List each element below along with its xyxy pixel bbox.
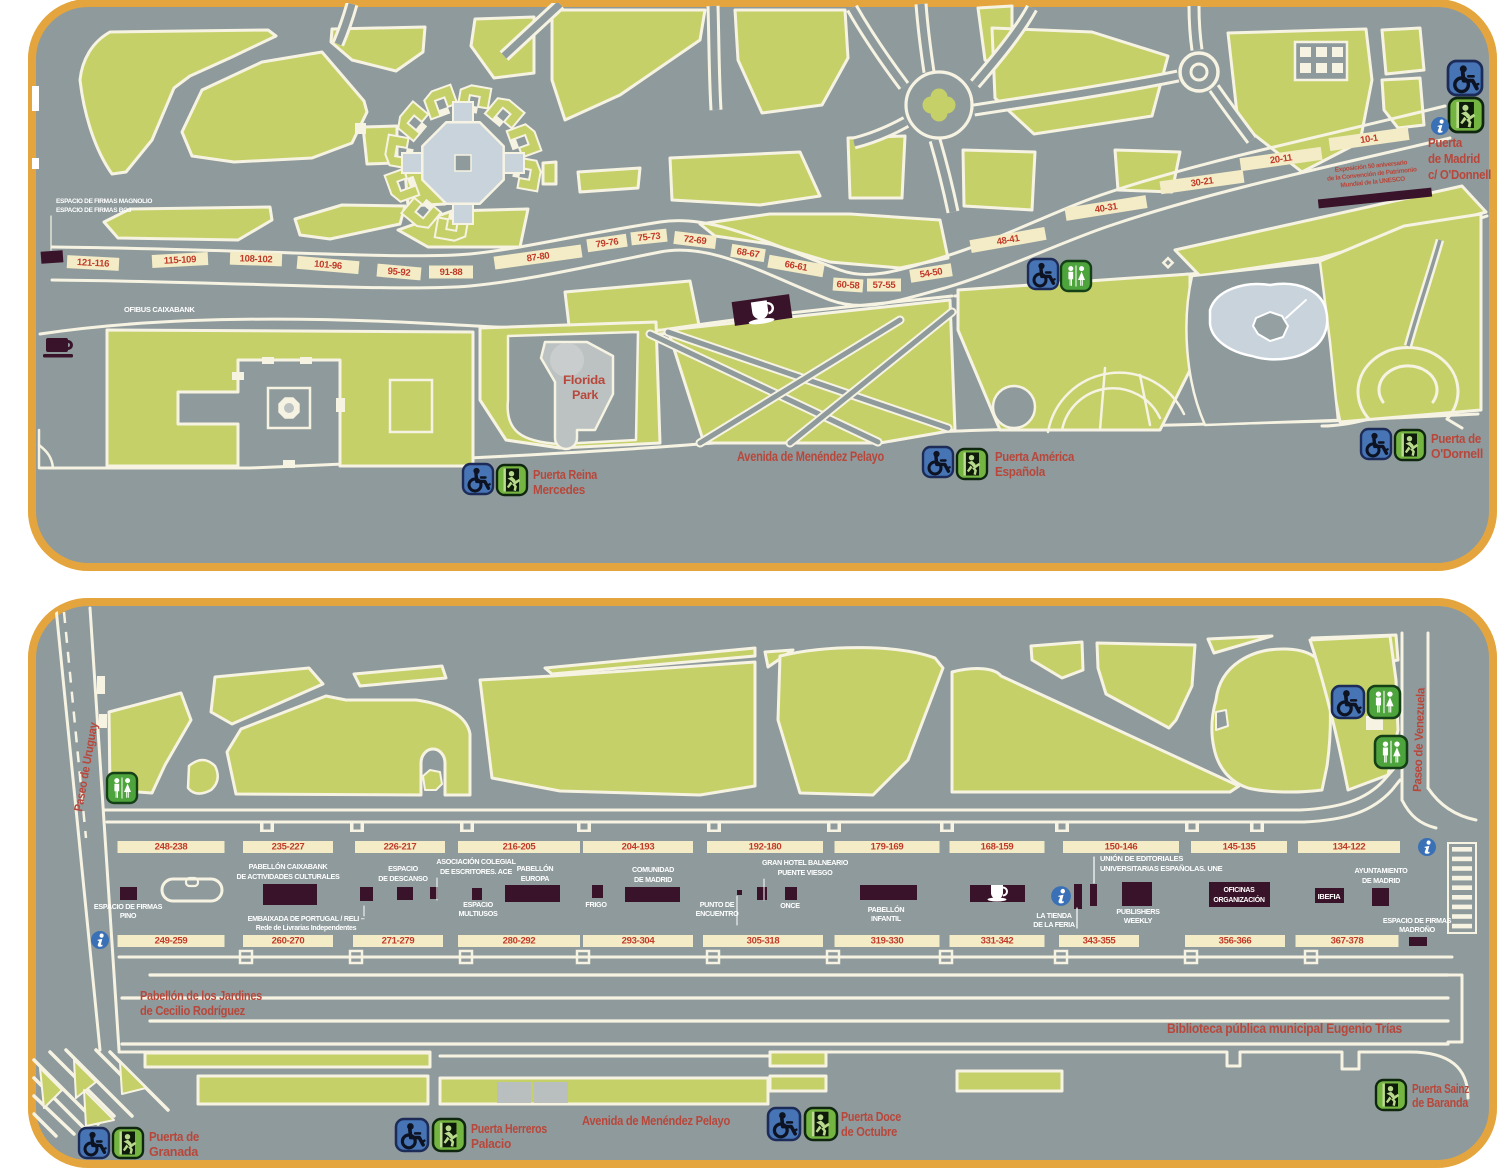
svg-text:OFICINAS: OFICINAS (1223, 887, 1255, 894)
svg-text:c/ O'Donnell: c/ O'Donnell (1428, 168, 1491, 182)
svg-text:91-88: 91-88 (440, 267, 463, 278)
svg-text:PABELLÓN CAIXABANK: PABELLÓN CAIXABANK (249, 862, 329, 871)
svg-text:Puerta América: Puerta América (995, 450, 1075, 464)
svg-text:356-366: 356-366 (1219, 935, 1252, 946)
svg-text:Puerta Herreros: Puerta Herreros (471, 1122, 547, 1136)
svg-text:PABELLÓN: PABELLÓN (517, 864, 554, 873)
svg-text:60-58: 60-58 (836, 279, 860, 292)
svg-text:FRIGO: FRIGO (585, 900, 607, 909)
svg-text:280-292: 280-292 (503, 935, 536, 946)
svg-text:134-122: 134-122 (1333, 841, 1366, 852)
svg-text:ESPACIO: ESPACIO (463, 900, 493, 909)
svg-text:235-227: 235-227 (272, 841, 305, 852)
svg-text:INFANTIL: INFANTIL (871, 914, 902, 923)
svg-text:319-330: 319-330 (871, 935, 904, 946)
svg-text:95-92: 95-92 (387, 266, 411, 279)
svg-text:204-193: 204-193 (622, 841, 655, 852)
svg-text:121-116: 121-116 (77, 257, 110, 270)
svg-text:COMUNIDAD: COMUNIDAD (632, 865, 674, 874)
svg-text:57-55: 57-55 (873, 280, 897, 291)
svg-text:PUNTO DE: PUNTO DE (700, 900, 735, 909)
svg-text:Granada: Granada (149, 1145, 199, 1159)
svg-text:ENCUENTRO: ENCUENTRO (696, 909, 740, 918)
svg-text:Puerta Doce: Puerta Doce (841, 1110, 901, 1124)
svg-text:GRAN HOTEL BALNEARIO: GRAN HOTEL BALNEARIO (762, 858, 849, 867)
svg-text:Avenida de Menéndez Pelayo: Avenida de Menéndez Pelayo (582, 1113, 730, 1128)
svg-text:DE DESCANSO: DE DESCANSO (378, 874, 428, 883)
svg-text:de Cecilio Rodríguez: de Cecilio Rodríguez (140, 1004, 245, 1018)
svg-text:AYUNTAMIENTO: AYUNTAMIENTO (1355, 866, 1409, 875)
svg-text:EMBAIXADA DE PORTUGAL / RELI –: EMBAIXADA DE PORTUGAL / RELI – (248, 914, 365, 923)
svg-text:PABELLÓN: PABELLÓN (868, 905, 905, 914)
svg-text:Park: Park (572, 388, 599, 402)
svg-text:UNIÓN DE EDITORIALES: UNIÓN DE EDITORIALES (1100, 854, 1183, 863)
svg-text:EUROPA: EUROPA (521, 874, 550, 883)
svg-text:Pabellón de los Jardines: Pabellón de los Jardines (140, 989, 262, 1003)
svg-text:192-180: 192-180 (749, 841, 782, 852)
svg-text:ESPACIO DE FIRMAS BOJ: ESPACIO DE FIRMAS BOJ (56, 207, 132, 214)
svg-text:216-205: 216-205 (503, 841, 537, 852)
svg-text:DE MADRID: DE MADRID (634, 875, 672, 884)
svg-text:249-259: 249-259 (155, 935, 188, 946)
svg-text:de Octubre: de Octubre (841, 1125, 897, 1139)
svg-text:Puerta de: Puerta de (149, 1130, 199, 1144)
svg-text:Puerta Reina: Puerta Reina (533, 468, 598, 482)
svg-text:293-304: 293-304 (622, 935, 656, 946)
svg-text:DE MADRID: DE MADRID (1362, 876, 1400, 885)
svg-text:271-279: 271-279 (382, 935, 415, 946)
svg-text:ESPACIO DE FIRMAS: ESPACIO DE FIRMAS (94, 902, 163, 911)
svg-text:de Madrid: de Madrid (1428, 152, 1480, 166)
svg-text:MULTIUSOS: MULTIUSOS (458, 909, 498, 918)
svg-text:Palacio: Palacio (471, 1137, 512, 1151)
svg-text:IBEFIA: IBEFIA (1318, 892, 1342, 901)
svg-text:226-217: 226-217 (384, 841, 417, 852)
svg-text:ORGANIZACIÓN: ORGANIZACIÓN (1213, 895, 1264, 904)
svg-text:ASOCIACIÓN COLEGIAL: ASOCIACIÓN COLEGIAL (436, 857, 516, 866)
svg-text:115-109: 115-109 (164, 254, 197, 267)
svg-text:168-159: 168-159 (981, 841, 1014, 852)
svg-text:331-342: 331-342 (981, 935, 1014, 946)
svg-text:179-169: 179-169 (871, 841, 904, 852)
svg-text:Avenida de Menéndez Pelayo: Avenida de Menéndez Pelayo (737, 448, 884, 464)
svg-text:de Baranda: de Baranda (1412, 1096, 1469, 1110)
svg-text:343-355: 343-355 (1083, 935, 1117, 946)
svg-text:ONCE: ONCE (780, 901, 800, 910)
svg-text:O'Dornell: O'Dornell (1431, 447, 1483, 461)
svg-text:260-270: 260-270 (272, 935, 305, 946)
svg-text:150-146: 150-146 (1105, 841, 1138, 852)
svg-text:OFIBUS CAIXABANK: OFIBUS CAIXABANK (124, 305, 196, 314)
svg-text:Puerta: Puerta (1428, 136, 1463, 150)
svg-text:Biblioteca pública municipal E: Biblioteca pública municipal Eugenio Trí… (1167, 1020, 1402, 1036)
svg-text:PUENTE VIESGO: PUENTE VIESGO (778, 868, 834, 877)
svg-text:WEEKLY: WEEKLY (1124, 916, 1153, 925)
svg-text:MADROÑO: MADROÑO (1399, 925, 1436, 934)
svg-text:ESPACIO: ESPACIO (388, 864, 418, 873)
svg-text:LA TIENDA: LA TIENDA (1036, 911, 1071, 920)
svg-text:Puerta Sainz: Puerta Sainz (1412, 1082, 1469, 1096)
svg-text:DE ESCRITORES. ACE: DE ESCRITORES. ACE (440, 867, 513, 876)
svg-text:248-238: 248-238 (155, 841, 188, 852)
svg-text:ESPACIO DE FIRMAS MAGNOLIO: ESPACIO DE FIRMAS MAGNOLIO (56, 198, 152, 205)
svg-text:145-135: 145-135 (1223, 841, 1257, 852)
svg-text:DE LA FERIA: DE LA FERIA (1033, 920, 1075, 929)
svg-text:DE ACTIVIDADES CULTURALES: DE ACTIVIDADES CULTURALES (236, 872, 340, 881)
svg-text:PUBLISHERS: PUBLISHERS (1116, 907, 1160, 916)
svg-text:108-102: 108-102 (239, 253, 272, 265)
svg-text:UNIVERSITARIAS ESPAÑOLAS. UNE: UNIVERSITARIAS ESPAÑOLAS. UNE (1100, 864, 1223, 873)
svg-text:Florida: Florida (563, 373, 606, 387)
svg-text:Mercedes: Mercedes (533, 483, 585, 497)
svg-text:ESPACIO DE FIRMAS: ESPACIO DE FIRMAS (1383, 916, 1452, 925)
svg-text:Española: Española (995, 465, 1046, 479)
svg-text:Puerta de: Puerta de (1431, 432, 1481, 446)
svg-text:PINO: PINO (120, 911, 137, 920)
svg-text:305-318: 305-318 (747, 935, 780, 946)
svg-text:367-378: 367-378 (1331, 935, 1364, 946)
svg-text:Rede de Livrarias Independente: Rede de Livrarias Independentes (256, 925, 357, 932)
